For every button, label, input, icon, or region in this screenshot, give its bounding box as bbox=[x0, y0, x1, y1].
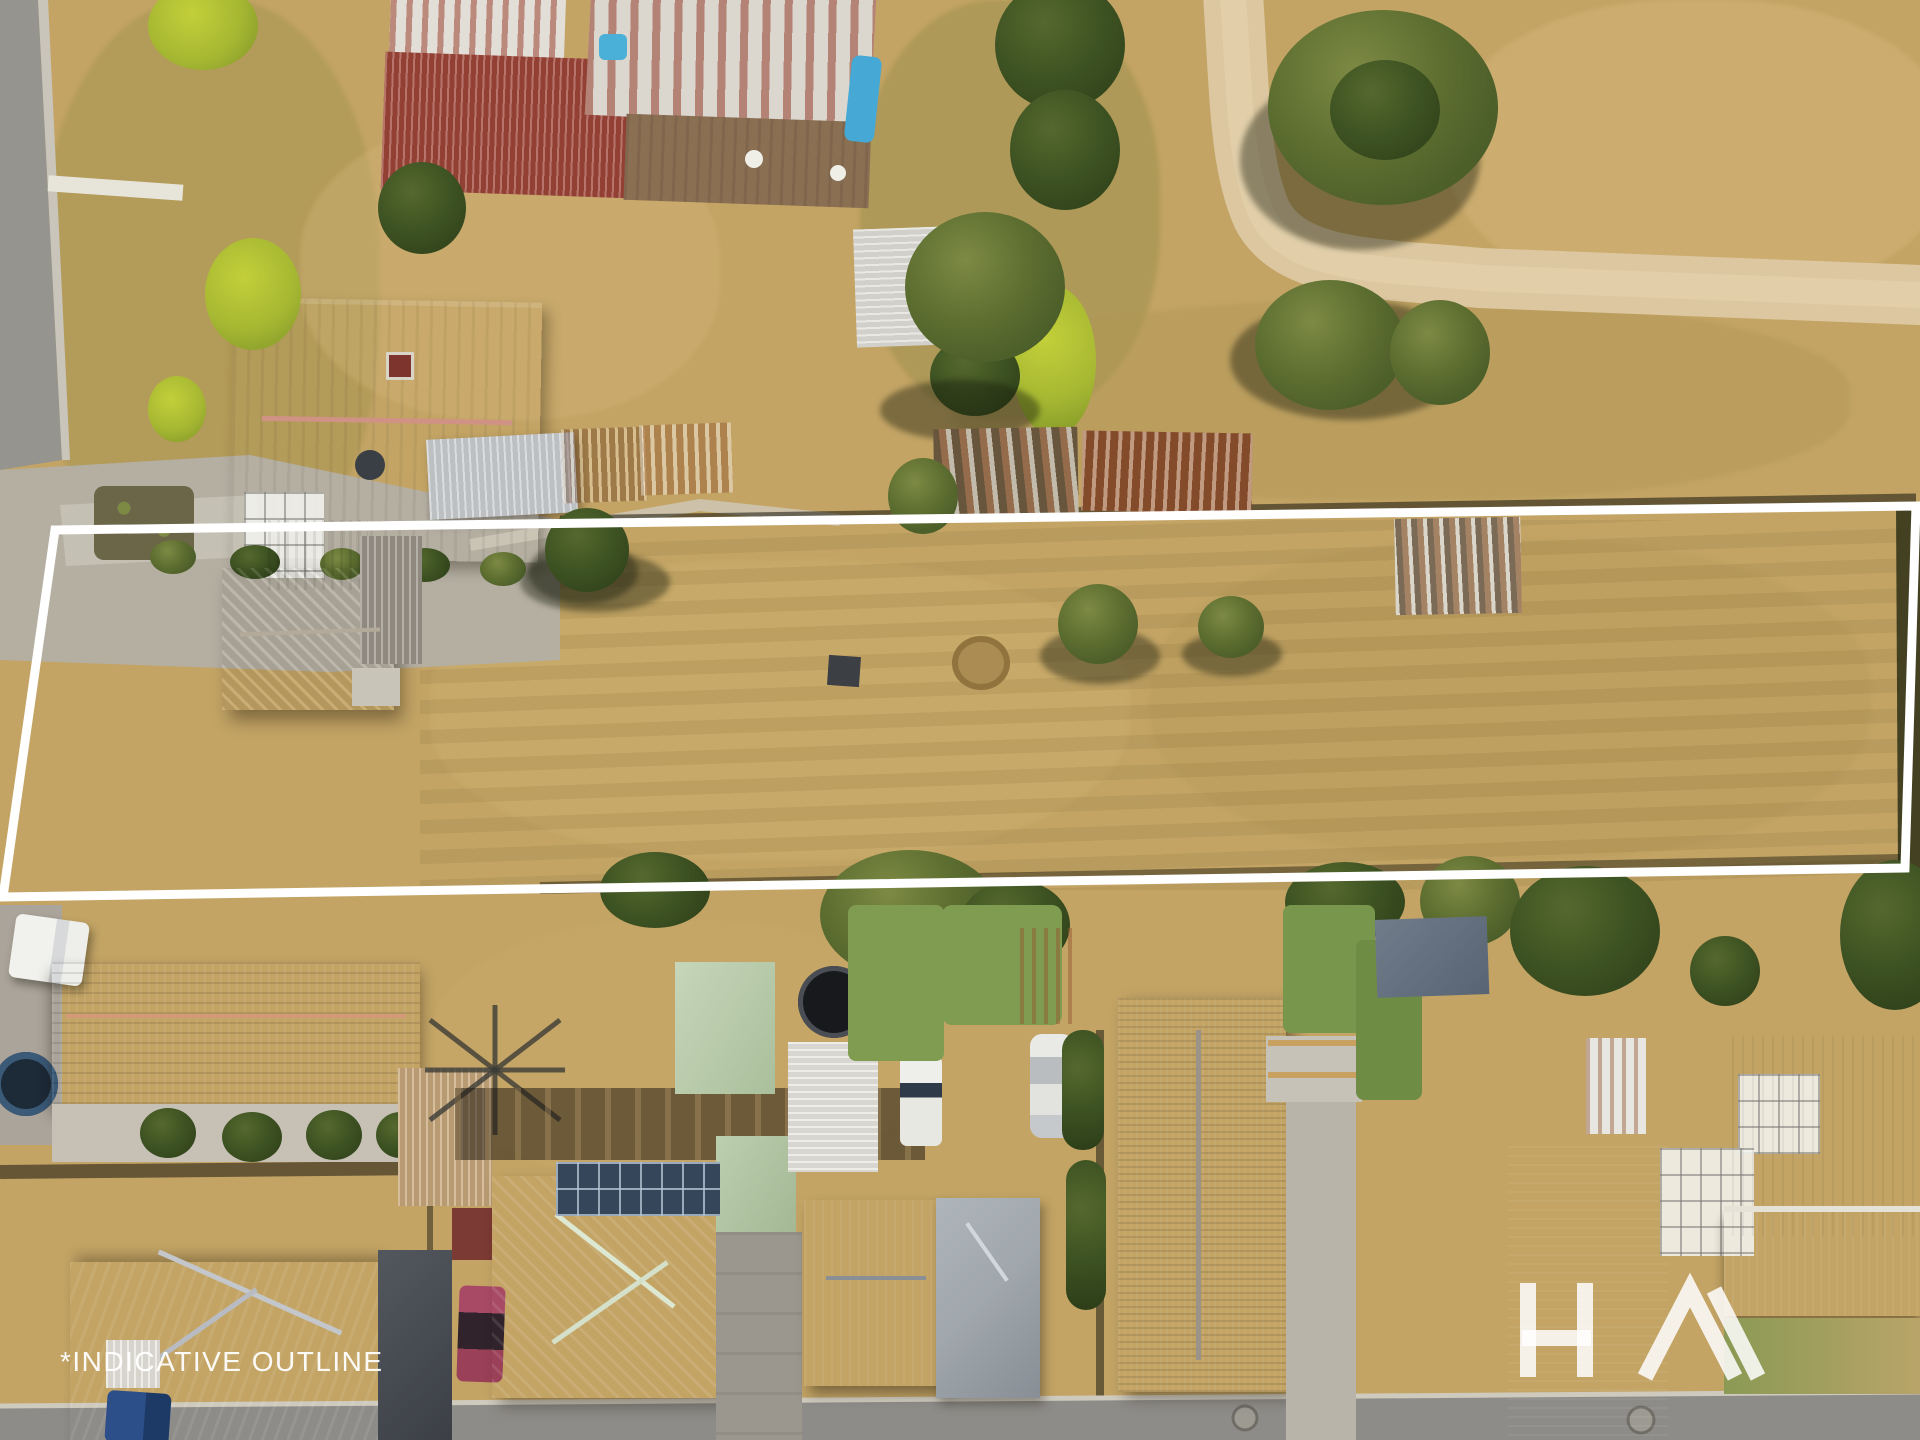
property-outline bbox=[3, 506, 1916, 897]
aerial-photo: *INDICATIVE OUTLINE bbox=[0, 0, 1920, 1440]
disclaimer-text: *INDICATIVE OUTLINE bbox=[60, 1346, 384, 1378]
overlay-graphics bbox=[0, 0, 1920, 1440]
agency-logo bbox=[1522, 1283, 1758, 1377]
